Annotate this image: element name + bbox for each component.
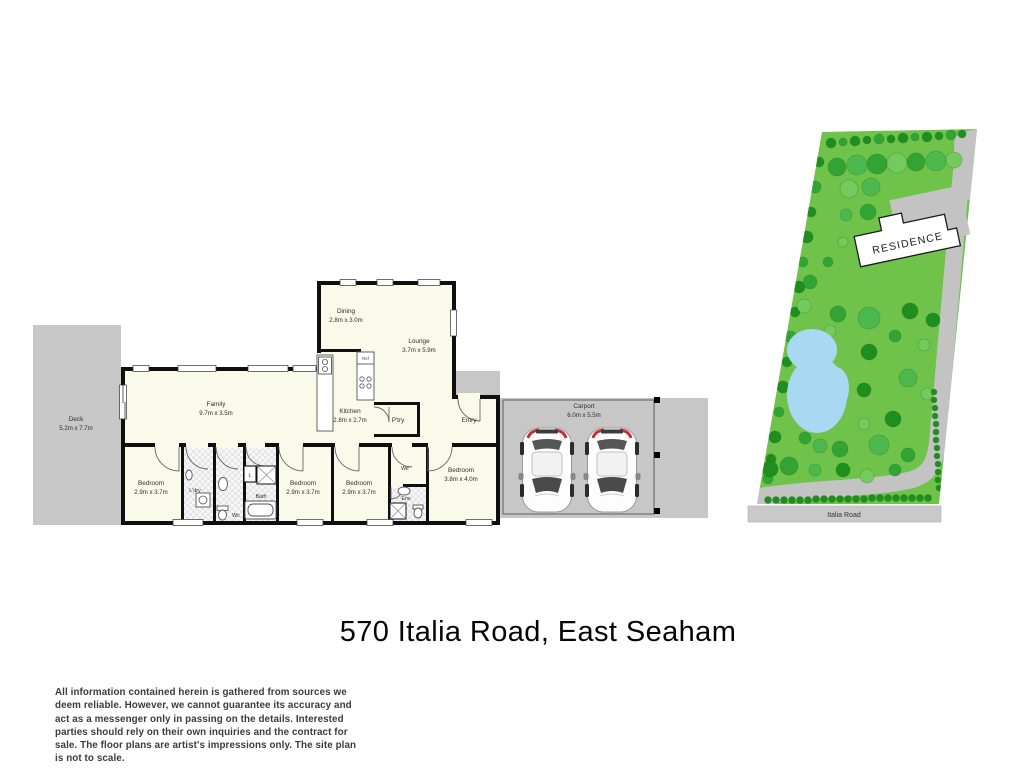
tree [830, 306, 846, 322]
room-label-bedroom1: Bedroom [138, 480, 164, 487]
carport-post [654, 452, 660, 458]
tree [893, 495, 900, 502]
tree [874, 134, 884, 144]
laundry-trough [186, 470, 192, 480]
svg-text:9.7m x 3.5m: 9.7m x 3.5m [199, 410, 233, 417]
tree [933, 437, 939, 443]
tree [813, 439, 827, 453]
room-label-bedroom2: Bedroom [290, 480, 316, 487]
carport-post [654, 508, 660, 514]
tree [765, 497, 772, 504]
tree [836, 463, 850, 477]
tree [840, 180, 858, 198]
tree [902, 303, 918, 319]
tree [797, 299, 811, 313]
tree [899, 369, 917, 387]
tree [918, 339, 930, 351]
tree [839, 138, 847, 146]
tree [877, 495, 884, 502]
tree [933, 429, 939, 435]
tree [887, 153, 907, 173]
tree [933, 421, 939, 427]
tree [926, 313, 940, 327]
tree [917, 495, 924, 502]
tree [832, 441, 848, 457]
room-label-family: Family [207, 401, 227, 408]
room-label-wc: Wc [232, 513, 240, 519]
tree [898, 133, 908, 143]
room-label-lounge: Lounge [408, 338, 430, 345]
tree [925, 495, 932, 502]
svg-text:2.8m x 2.7m: 2.8m x 2.7m [333, 417, 367, 424]
tree [934, 453, 940, 459]
tree [932, 405, 938, 411]
plan-canvas: Ref [0, 0, 1024, 600]
tree [958, 130, 966, 138]
tree [801, 231, 813, 243]
tree [935, 477, 941, 483]
ens-basin [398, 487, 410, 495]
room-label-dining: Dining [337, 308, 356, 315]
tree [936, 485, 942, 491]
tree [860, 469, 874, 483]
tree [907, 153, 925, 171]
room-label-pantry: P'try [392, 417, 405, 424]
tree [935, 132, 943, 140]
room-label-bedroom3: Bedroom [346, 480, 372, 487]
tree [773, 497, 780, 504]
svg-text:2.9m x 3.7m: 2.9m x 3.7m [134, 489, 168, 496]
svg-text:2.9m x 3.7m: 2.9m x 3.7m [286, 489, 320, 496]
tree [922, 132, 932, 142]
tree [838, 237, 848, 247]
svg-text:3.7m x 5.9m: 3.7m x 5.9m [402, 347, 436, 354]
tree [814, 157, 824, 167]
tree [935, 461, 941, 467]
floor-plan: Ref [33, 280, 708, 526]
tree [762, 461, 778, 477]
tree [946, 152, 962, 168]
tree [861, 496, 868, 503]
room-label-wir: Wir [401, 466, 409, 472]
tree [813, 496, 820, 503]
tree [837, 496, 844, 503]
tree [857, 383, 871, 397]
svg-text:6.0m x 5.5m: 6.0m x 5.5m [567, 412, 601, 419]
disclaimer-text: All information contained herein is gath… [55, 686, 357, 766]
tree [850, 136, 860, 146]
page-title: 570 Italia Road, East Seaham [54, 616, 1022, 649]
tree [828, 158, 846, 176]
room-label-bath: Bath [255, 494, 266, 500]
fridge-label: Ref [362, 356, 369, 361]
tree [869, 495, 876, 502]
tree [885, 495, 892, 502]
tree [887, 135, 895, 143]
tree [847, 155, 867, 175]
tree [799, 432, 811, 444]
road-label: Italia Road [827, 512, 861, 519]
tree [797, 497, 804, 504]
tree [774, 407, 784, 417]
room-label-bedroom4: Bedroom [448, 467, 474, 474]
tree [789, 497, 796, 504]
tree [934, 445, 940, 451]
tree [805, 497, 812, 504]
tree [853, 496, 860, 503]
tree [862, 178, 880, 196]
tree [926, 151, 946, 171]
tree [869, 435, 889, 455]
svg-text:2.8m x 3.0m: 2.8m x 3.0m [329, 317, 363, 324]
tree [798, 257, 808, 267]
room-label-ens: Ens [401, 496, 411, 502]
tree [860, 204, 876, 220]
car-1 [519, 428, 576, 512]
tree [889, 464, 901, 476]
floorplan-page: Ref [0, 0, 1024, 769]
washing-machine [196, 493, 210, 507]
tree [858, 418, 870, 430]
tree [931, 397, 937, 403]
tree [935, 469, 941, 475]
tree [858, 307, 880, 329]
wc-basin [219, 478, 228, 491]
tree [781, 497, 788, 504]
carport-post [654, 397, 660, 403]
room-label-kitchen: Kitchen [339, 408, 361, 415]
tree [806, 207, 816, 217]
tree [769, 431, 781, 443]
tree [901, 448, 915, 462]
room-label-deck: Deck [69, 416, 84, 423]
car-2 [584, 428, 641, 512]
tree [932, 413, 938, 419]
tree [931, 389, 937, 395]
tree [780, 457, 798, 475]
tree [946, 130, 956, 140]
tree [803, 275, 817, 289]
site-plan: RESIDENCE Italia Road [748, 129, 977, 522]
svg-text:2.9m x 3.7m: 2.9m x 3.7m [342, 489, 376, 496]
tree [829, 496, 836, 503]
tree [901, 495, 908, 502]
room-label-carport: Carport [573, 403, 595, 410]
tree [840, 209, 852, 221]
tree [911, 133, 919, 141]
tree [826, 138, 836, 148]
tree [885, 411, 901, 427]
tree [861, 344, 877, 360]
svg-text:3.8m x 4.0m: 3.8m x 4.0m [444, 476, 478, 483]
room-label-entry: Entry [462, 417, 478, 424]
tree [867, 154, 887, 174]
tree [909, 495, 916, 502]
room-label-laundry: L'dry [189, 488, 201, 494]
tree [889, 330, 901, 342]
tree [821, 496, 828, 503]
tree [845, 496, 852, 503]
room-label-linen: L [249, 473, 252, 479]
tree [809, 464, 821, 476]
tree [809, 181, 821, 193]
svg-text:5.2m x 7.7m: 5.2m x 7.7m [59, 425, 93, 432]
tree [863, 136, 871, 144]
tree [823, 257, 833, 267]
